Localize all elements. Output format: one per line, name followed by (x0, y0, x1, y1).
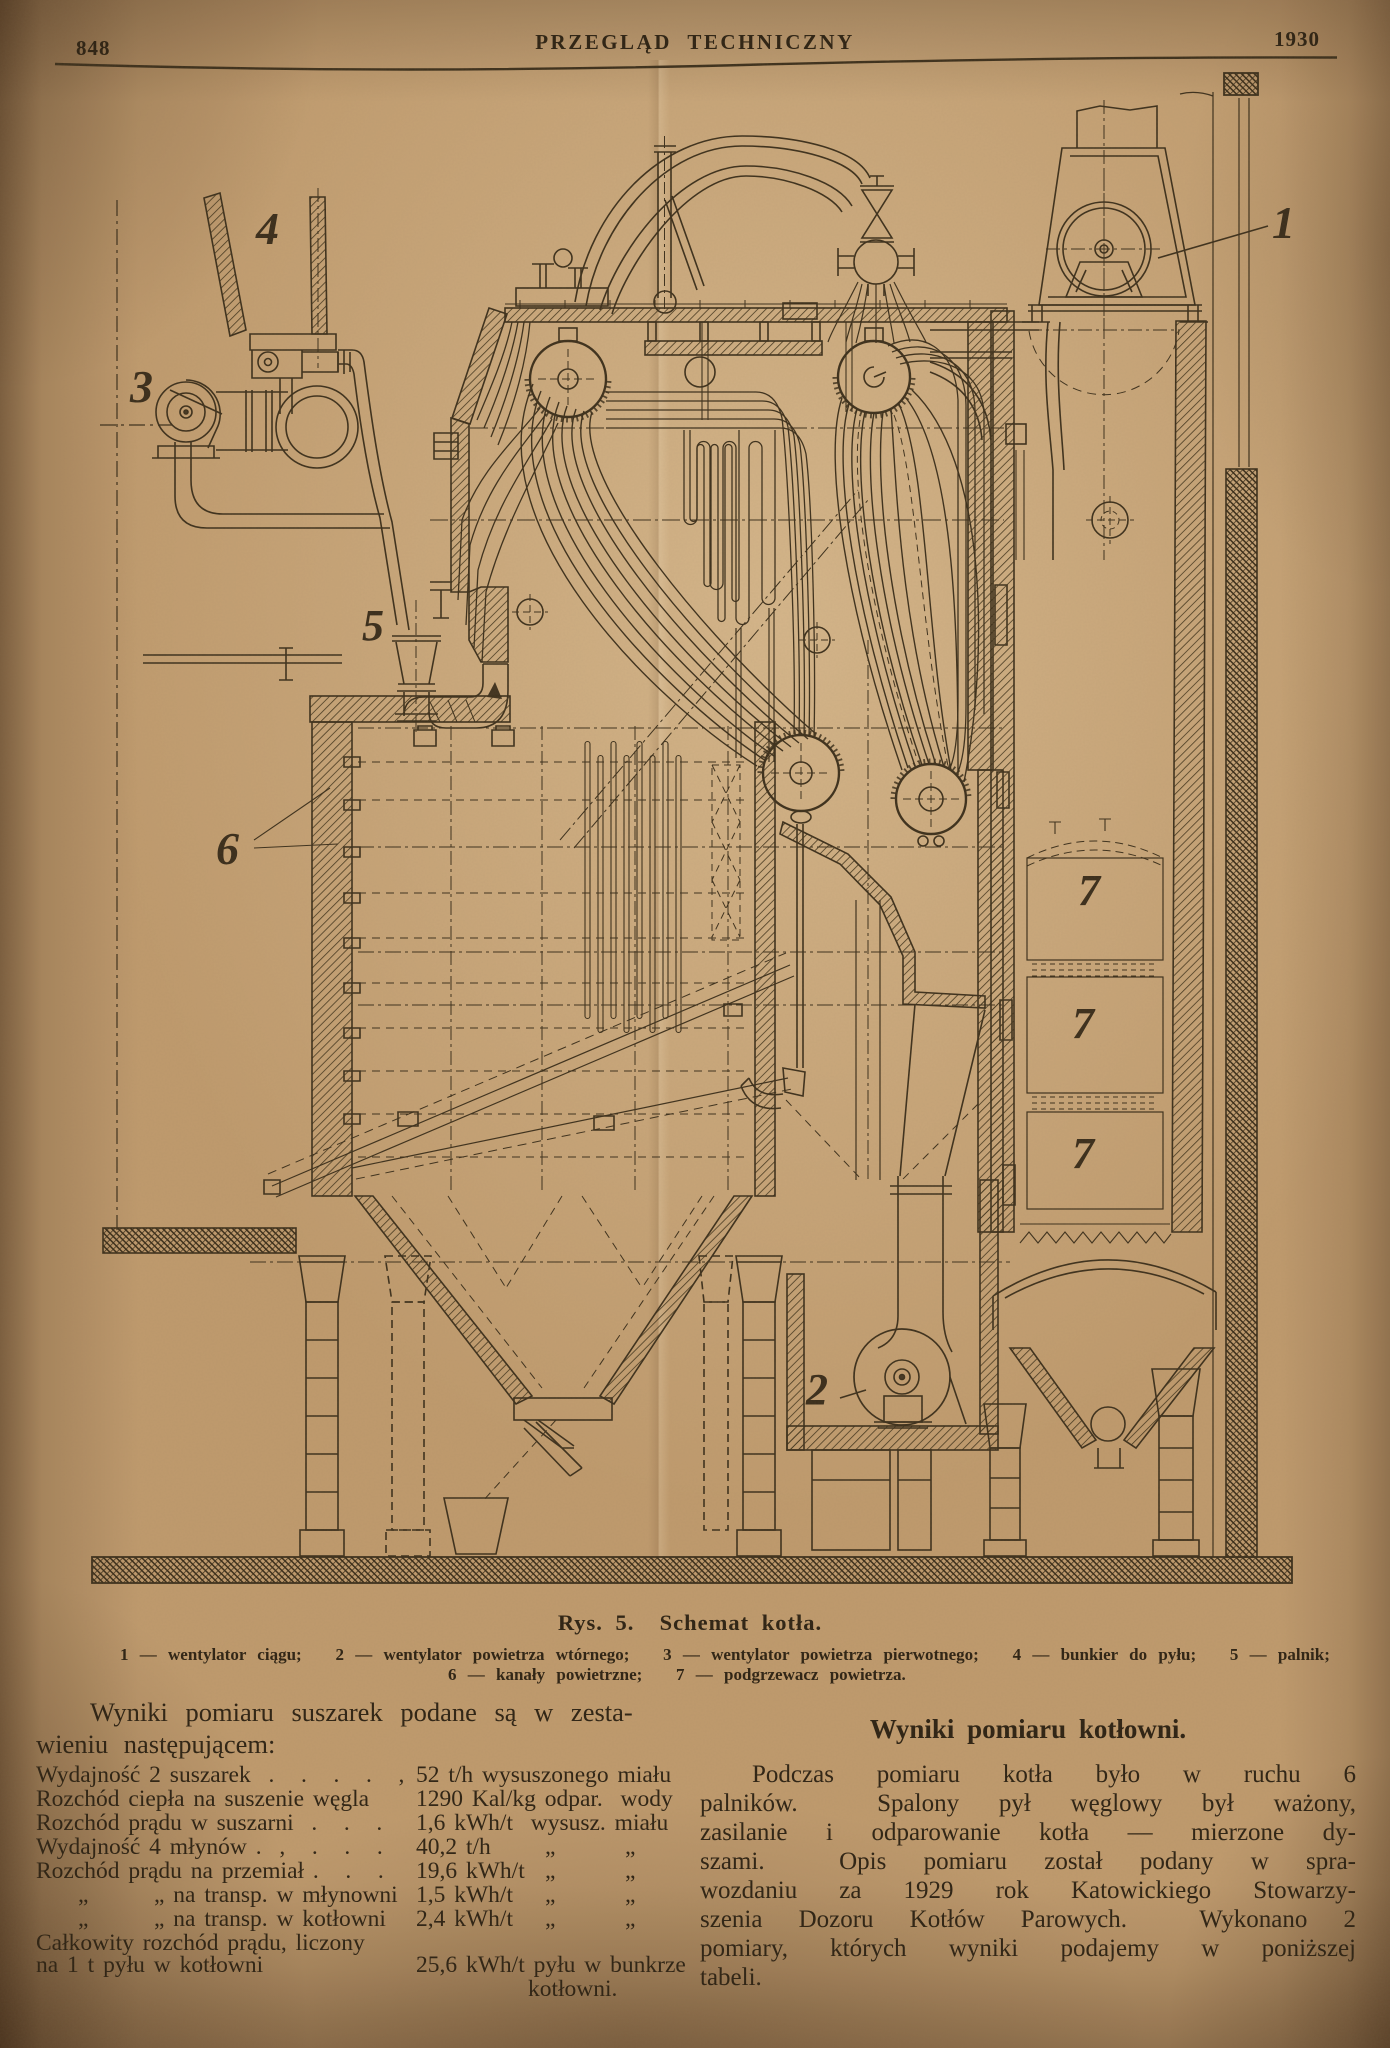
svg-text:5: 5 (362, 601, 384, 650)
svg-text:3: 3 (129, 361, 153, 412)
svg-text:2: 2 (805, 1365, 828, 1414)
svg-text:7: 7 (1072, 999, 1096, 1048)
svg-text:1: 1 (1272, 197, 1295, 248)
svg-text:7: 7 (1072, 1129, 1096, 1178)
svg-text:4: 4 (255, 203, 279, 254)
svg-text:6: 6 (216, 823, 239, 874)
svg-text:7: 7 (1078, 866, 1102, 915)
